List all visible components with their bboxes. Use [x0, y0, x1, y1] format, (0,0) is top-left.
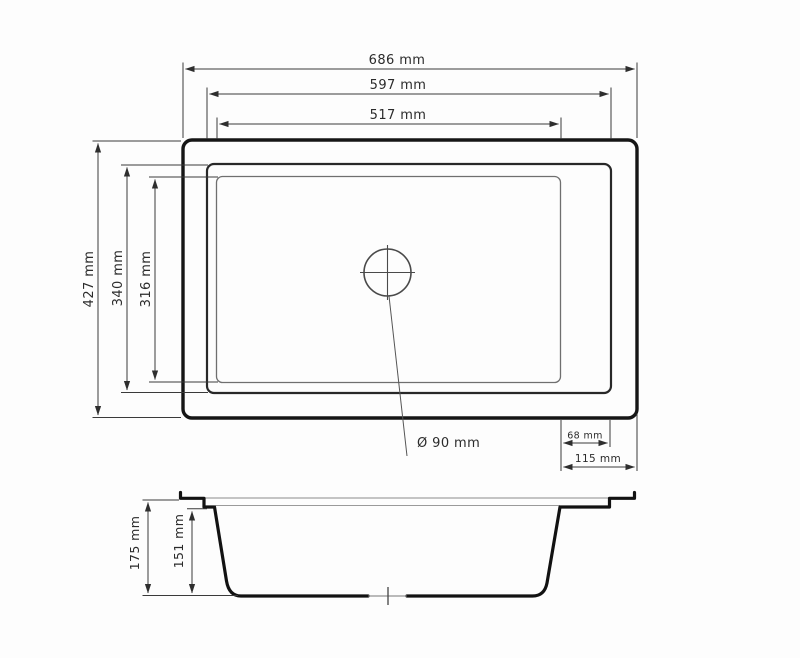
dimension-bowl-width: 517 mm	[217, 108, 561, 139]
dimension-rim-height: 340 mm	[111, 165, 208, 393]
right-ledge-outer-label: 115 mm	[575, 453, 621, 465]
dimension-outer-width: 686 mm	[183, 53, 637, 138]
rim-width-label: 597 mm	[370, 78, 427, 93]
sink-rim-edge	[207, 164, 611, 393]
technical-drawing-canvas: Ø 90 mm 686 mm 597 mm 517 mm 427 mm 340 …	[0, 0, 800, 658]
sink-drawing: Ø 90 mm 686 mm 597 mm 517 mm 427 mm 340 …	[0, 0, 800, 658]
profile-left	[181, 493, 369, 597]
drain-leader-line	[389, 296, 407, 456]
dimension-outer-height: 427 mm	[82, 141, 181, 418]
bowl-inner-edge	[217, 177, 561, 383]
drain-symbol	[360, 245, 415, 300]
total-depth-label: 175 mm	[127, 516, 142, 571]
profile-right	[407, 493, 635, 597]
bowl-height-label: 316 mm	[139, 251, 154, 308]
side-view	[181, 493, 635, 606]
outer-width-label: 686 mm	[369, 53, 426, 68]
top-view: Ø 90 mm	[183, 140, 637, 456]
drain-diameter-label: Ø 90 mm	[417, 436, 480, 451]
dimension-bowl-depth: 151 mm	[171, 509, 207, 593]
outer-height-label: 427 mm	[82, 251, 97, 308]
right-ledge-inner-label: 68 mm	[567, 431, 603, 442]
rim-height-label: 340 mm	[111, 250, 126, 307]
bowl-depth-label: 151 mm	[171, 514, 186, 569]
bowl-width-label: 517 mm	[370, 108, 427, 123]
